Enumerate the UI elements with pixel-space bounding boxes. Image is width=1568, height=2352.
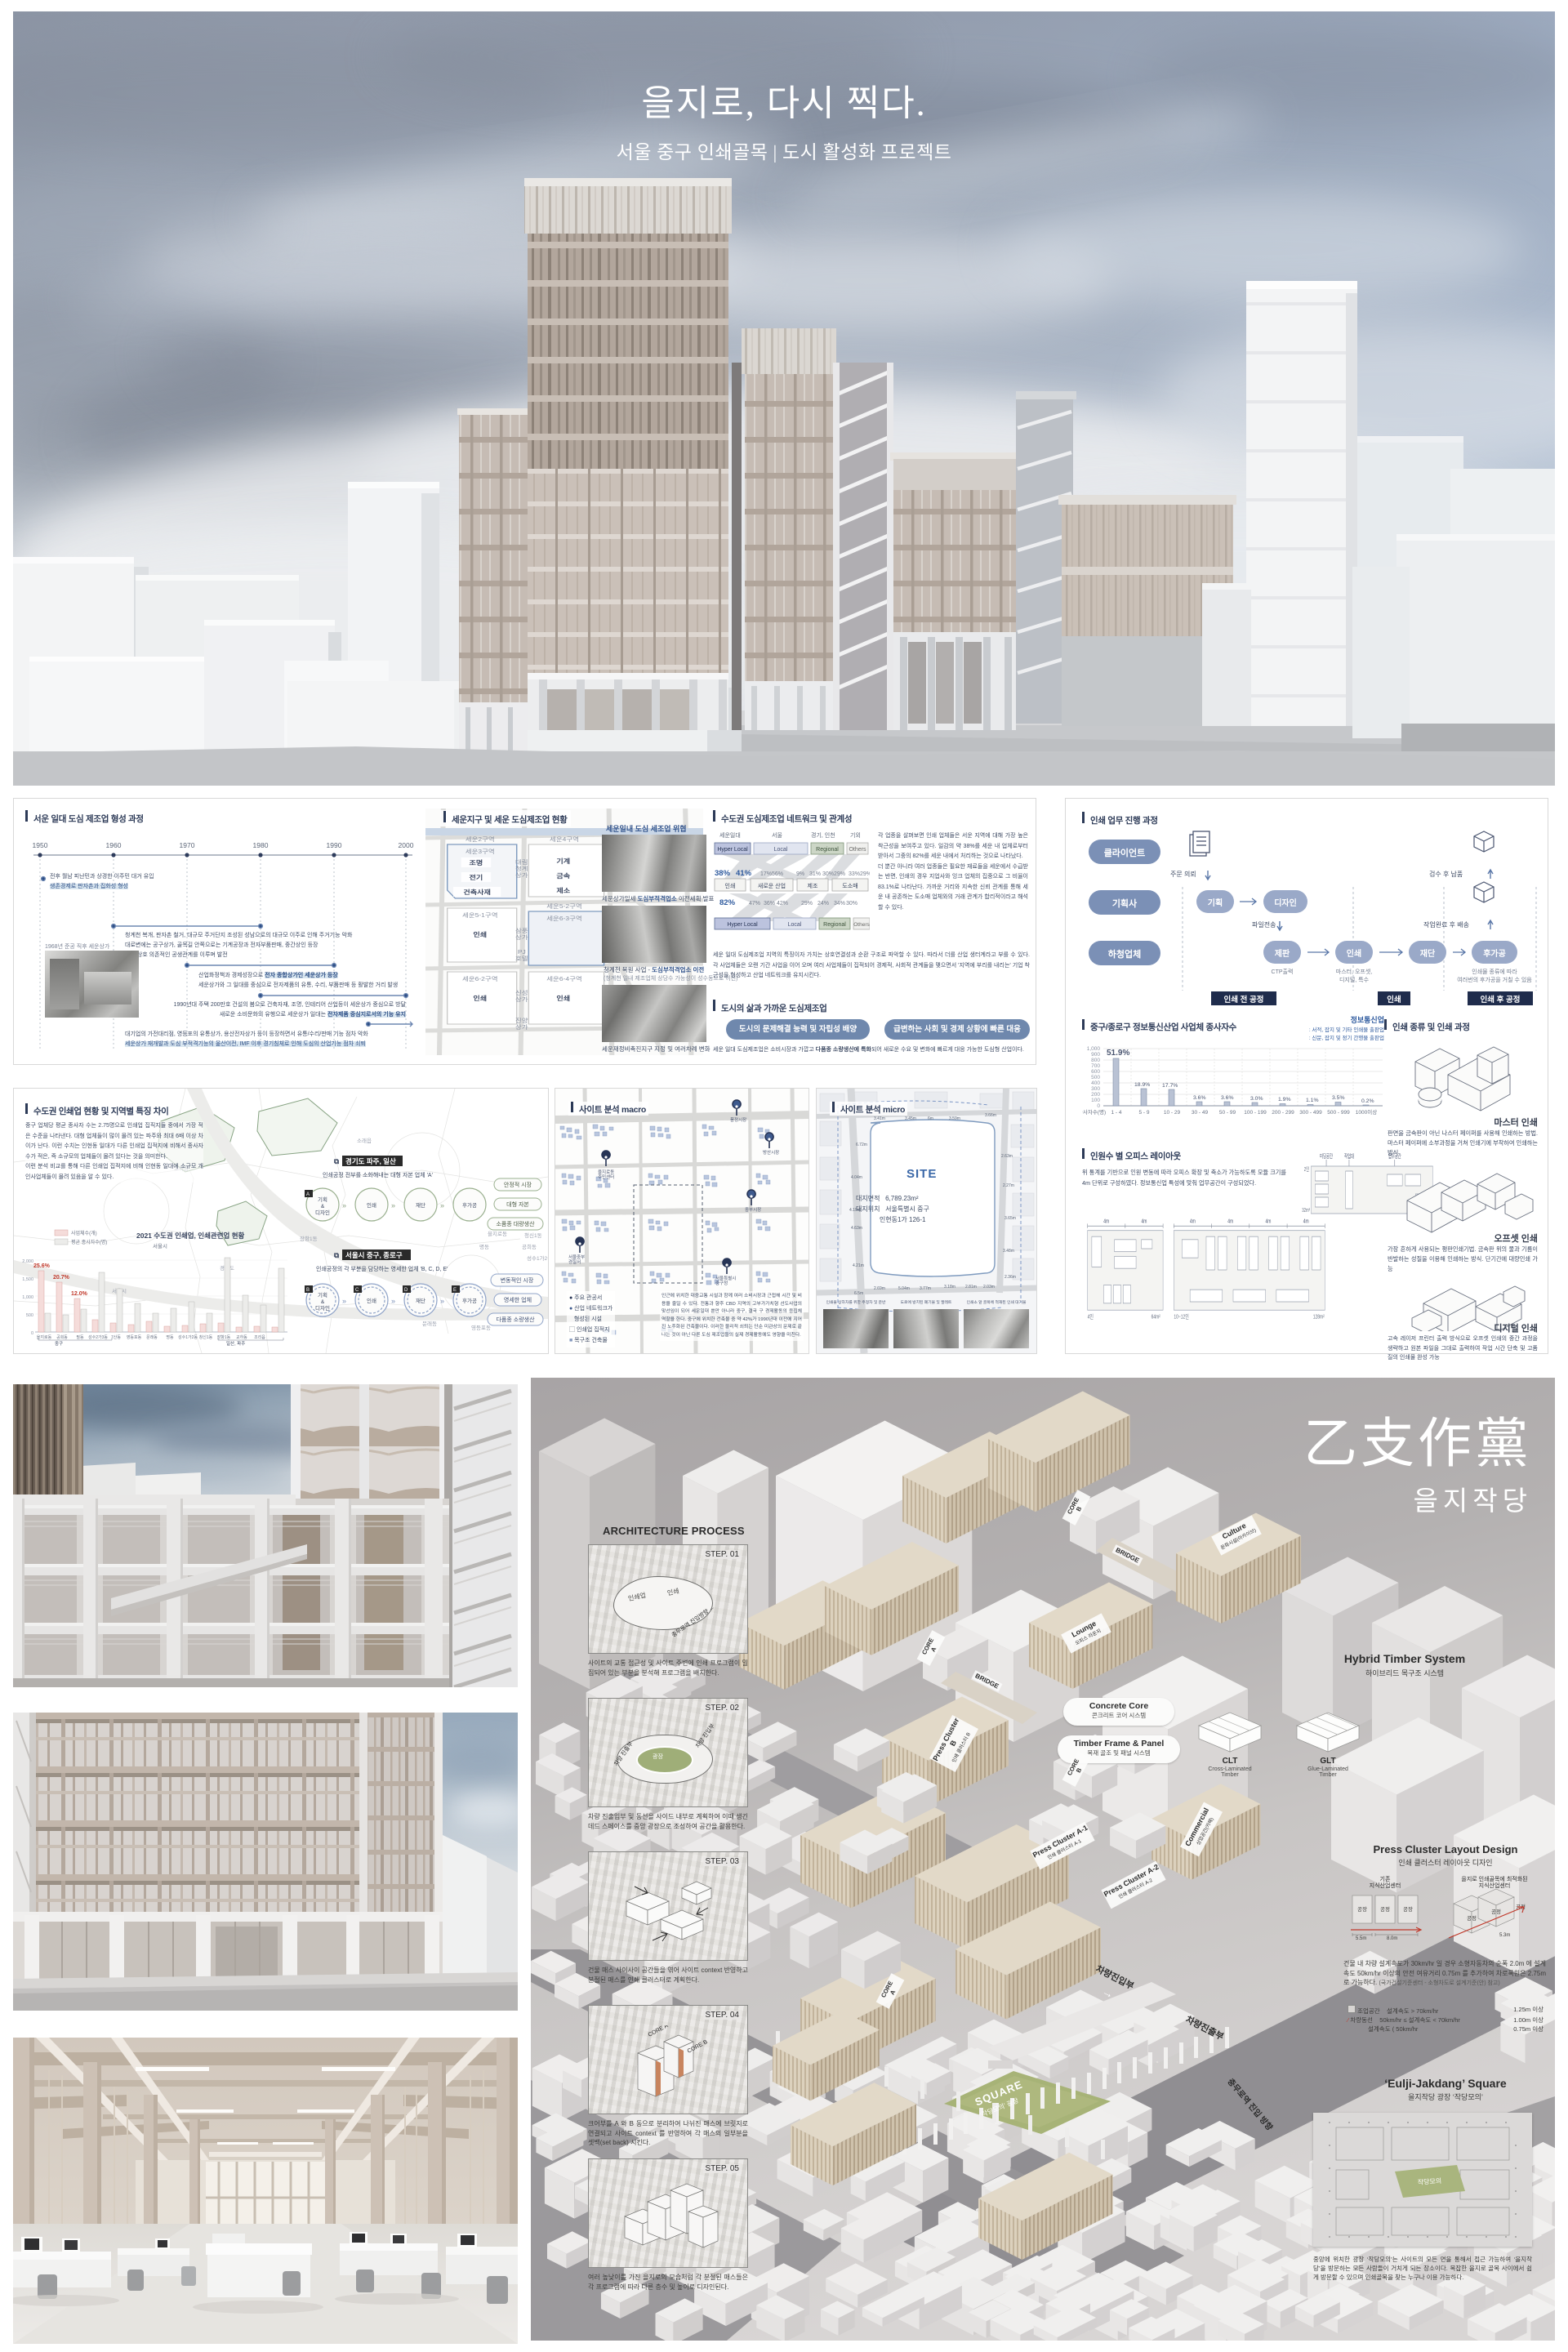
svg-text:4m: 4m bbox=[1190, 1219, 1196, 1225]
svg-text:을지로동: 을지로동 bbox=[37, 1334, 52, 1340]
svg-text:4m: 4m bbox=[1142, 1219, 1147, 1225]
svg-text:128m²: 128m² bbox=[1313, 1315, 1325, 1321]
svg-text:34%: 34% bbox=[834, 901, 845, 906]
svg-text:1980: 1980 bbox=[253, 841, 269, 849]
svg-text:세운2구역: 세운2구역 bbox=[465, 835, 495, 843]
svg-text:인쇄: 인쇄 bbox=[473, 931, 487, 938]
svg-text:인쇄공정 전부를 소화해내는 대형 자본 업체 'A': 인쇄공정 전부를 소화해내는 대형 자본 업체 'A' bbox=[323, 1171, 433, 1178]
svg-text:500: 500 bbox=[1091, 1075, 1100, 1080]
svg-text:3.77m: 3.77m bbox=[920, 1286, 931, 1291]
svg-text:2.69m: 2.69m bbox=[874, 1286, 885, 1291]
svg-text:1960: 1960 bbox=[106, 841, 122, 849]
svg-text:42%: 42% bbox=[777, 901, 788, 906]
svg-text:중부시장: 중부시장 bbox=[745, 1207, 761, 1213]
svg-text:중구: 중구 bbox=[55, 1341, 63, 1346]
svg-text:세운4구역: 세운4구역 bbox=[550, 835, 579, 843]
svg-text:3.6%: 3.6% bbox=[1193, 1095, 1206, 1101]
svg-text:공정: 공정 bbox=[1491, 1908, 1501, 1915]
svg-text:4인: 4인 bbox=[1088, 1314, 1094, 1321]
svg-text:여러번의 후가공을 거칠 수 있음: 여러번의 후가공을 거칠 수 있음 bbox=[1457, 976, 1532, 983]
svg-text:3.0%: 3.0% bbox=[1250, 1096, 1263, 1102]
svg-text:10~12인: 10~12인 bbox=[1174, 1314, 1188, 1321]
svg-text:500 - 999: 500 - 999 bbox=[1327, 1110, 1350, 1116]
svg-text:작업완료 후 배송: 작업완료 후 배송 bbox=[1423, 920, 1469, 929]
svg-text:30%: 30% bbox=[846, 901, 857, 906]
svg-text:Others: Others bbox=[853, 922, 870, 928]
svg-text:3.65m: 3.65m bbox=[1004, 1216, 1016, 1221]
svg-text:1 - 4: 1 - 4 bbox=[1111, 1110, 1121, 1116]
svg-text:세운3구역: 세운3구역 bbox=[465, 848, 495, 855]
svg-text:3.66m: 3.66m bbox=[985, 1113, 996, 1118]
svg-text:2.27m: 2.27m bbox=[1003, 1183, 1014, 1188]
svg-text:디자인: 디자인 bbox=[315, 1304, 330, 1312]
svg-text:후가공: 후가공 bbox=[1483, 948, 1506, 959]
svg-text:17%: 17% bbox=[760, 871, 772, 877]
svg-text:기획: 기획 bbox=[318, 1196, 327, 1203]
svg-text:Cross-Laminated: Cross-Laminated bbox=[1208, 1766, 1251, 1772]
svg-text:32m²: 32m² bbox=[1302, 1208, 1310, 1214]
svg-text:3.18m: 3.18m bbox=[944, 1285, 955, 1290]
svg-text:Regional: Regional bbox=[816, 847, 839, 853]
svg-text:24%: 24% bbox=[817, 901, 829, 906]
svg-text:Timber: Timber bbox=[1221, 1772, 1239, 1778]
svg-text:작당모의: 작당모의 bbox=[1417, 2176, 1441, 2186]
svg-text:성수1가2동: 성수1가2동 bbox=[178, 1334, 198, 1340]
svg-text:20.7%: 20.7% bbox=[53, 1275, 70, 1281]
svg-text:파일전송: 파일전송 bbox=[1252, 920, 1276, 929]
svg-text:17.7%: 17.7% bbox=[1162, 1083, 1178, 1089]
svg-text:1,500: 1,500 bbox=[22, 1277, 33, 1282]
svg-text:»: » bbox=[342, 1201, 346, 1209]
svg-text:상가: 상가 bbox=[515, 996, 528, 1003]
svg-text:56%: 56% bbox=[772, 871, 783, 877]
svg-text:D: D bbox=[404, 1288, 408, 1293]
svg-text:인쇄: 인쇄 bbox=[367, 1201, 376, 1209]
svg-text:금속: 금속 bbox=[556, 872, 570, 880]
svg-text:디자인: 디자인 bbox=[1274, 898, 1297, 908]
svg-text:세운6-3구역: 세운6-3구역 bbox=[546, 915, 581, 922]
svg-text:인쇄물 종류에 따라: 인쇄물 종류에 따라 bbox=[1472, 968, 1517, 975]
svg-text:2.36m: 2.36m bbox=[1004, 1275, 1016, 1280]
svg-text:미딩공간: 미딩공간 bbox=[1320, 1152, 1333, 1160]
svg-text:300: 300 bbox=[1091, 1086, 1100, 1092]
svg-text:100 - 199: 100 - 199 bbox=[1244, 1110, 1267, 1116]
svg-text:을지로 인쇄골목에 최적화된: 을지로 인쇄골목에 최적화된 bbox=[1461, 1875, 1527, 1882]
svg-text:25.6%: 25.6% bbox=[33, 1263, 51, 1269]
svg-text:1.1%: 1.1% bbox=[1306, 1098, 1319, 1103]
svg-text:기획: 기획 bbox=[1208, 898, 1223, 908]
svg-text:29%: 29% bbox=[860, 871, 870, 877]
svg-text:평균 종사자수(명): 평균 종사자수(명) bbox=[71, 1239, 107, 1245]
svg-text:6.72m: 6.72m bbox=[856, 1143, 867, 1147]
svg-text:5 - 9: 5 - 9 bbox=[1138, 1110, 1149, 1116]
svg-text:2.03m: 2.03m bbox=[983, 1285, 995, 1290]
svg-text:38%: 38% bbox=[715, 869, 731, 878]
svg-text:인쇄: 인쇄 bbox=[1387, 995, 1401, 1004]
svg-text:5.3m: 5.3m bbox=[1499, 1933, 1510, 1938]
svg-text:82%: 82% bbox=[719, 898, 736, 907]
svg-text:Regional: Regional bbox=[823, 922, 846, 928]
svg-text:Local: Local bbox=[774, 847, 788, 853]
svg-text:3.45m: 3.45m bbox=[905, 1116, 916, 1121]
svg-text:전기: 전기 bbox=[470, 874, 483, 881]
svg-text:64m²: 64m² bbox=[1151, 1315, 1160, 1321]
svg-text:기존: 기존 bbox=[1380, 1875, 1391, 1882]
svg-text:Hyper Local: Hyper Local bbox=[717, 847, 748, 853]
svg-text:1.9%: 1.9% bbox=[1278, 1097, 1291, 1102]
svg-text:신성: 신성 bbox=[515, 990, 528, 996]
svg-text:인쇄: 인쇄 bbox=[556, 995, 570, 1002]
svg-text:3.5%: 3.5% bbox=[1332, 1095, 1345, 1101]
svg-text:1950: 1950 bbox=[33, 841, 48, 849]
svg-text:다품종 소량생산: 다품종 소량생산 bbox=[496, 1316, 535, 1323]
svg-text:6.5m: 6.5m bbox=[854, 1291, 863, 1296]
svg-text:5.5m: 5.5m bbox=[1356, 1936, 1366, 1941]
svg-text:창신1동: 창신1동 bbox=[199, 1334, 213, 1340]
svg-text:소품종 대량생산: 소품종 대량생산 bbox=[496, 1220, 535, 1227]
svg-text:30%: 30% bbox=[822, 871, 834, 877]
svg-text:900: 900 bbox=[1091, 1052, 1100, 1058]
svg-text:200 - 299: 200 - 299 bbox=[1272, 1110, 1294, 1116]
svg-text:2,000: 2,000 bbox=[22, 1259, 33, 1264]
svg-text:공정: 공정 bbox=[1380, 1905, 1390, 1913]
svg-text:종사자수(명): 종사자수(명) bbox=[1082, 1108, 1106, 1116]
svg-text:서울시 중구, 종로구: 서울시 중구, 종로구 bbox=[345, 1251, 403, 1259]
svg-text:2021 수도권 인쇄업, 인쇄관련업 현황: 2021 수도권 인쇄업, 인쇄관련업 현황 bbox=[136, 1232, 245, 1240]
svg-text:필동: 필동 bbox=[76, 1334, 84, 1340]
svg-text:일산, 파주: 일산, 파주 bbox=[226, 1340, 245, 1346]
svg-text:30 - 49: 30 - 49 bbox=[1192, 1110, 1209, 1116]
svg-text:서울시: 서울시 bbox=[153, 1242, 167, 1249]
svg-text:0: 0 bbox=[1097, 1103, 1100, 1109]
svg-text:4m: 4m bbox=[1303, 1219, 1309, 1225]
svg-text:풍정시장: 풍정시장 bbox=[730, 1117, 746, 1123]
svg-text:5.04m: 5.04m bbox=[898, 1286, 910, 1291]
svg-text:300 - 499: 300 - 499 bbox=[1299, 1110, 1322, 1116]
svg-text:36%: 36% bbox=[764, 901, 775, 906]
svg-text:청계: 청계 bbox=[515, 865, 528, 872]
svg-text:⧉: ⧉ bbox=[334, 1157, 340, 1165]
svg-text:CTP출력: CTP출력 bbox=[1272, 968, 1294, 975]
svg-text:상가: 상가 bbox=[515, 1023, 528, 1031]
svg-text:기획: 기획 bbox=[318, 1291, 327, 1298]
svg-text:세운일대: 세운일대 bbox=[719, 831, 741, 839]
svg-text:마스터, 오프셋,: 마스터, 오프셋, bbox=[1336, 968, 1373, 975]
svg-text:4.21m: 4.21m bbox=[853, 1263, 864, 1268]
svg-text:9%: 9% bbox=[796, 871, 804, 877]
svg-text:800: 800 bbox=[1091, 1058, 1100, 1063]
svg-text:영세한 업체: 영세한 업체 bbox=[504, 1296, 532, 1303]
svg-text:변동적인 시장: 변동적인 시장 bbox=[501, 1276, 534, 1284]
svg-text:»: » bbox=[391, 1297, 395, 1305]
svg-text:경기, 인천: 경기, 인천 bbox=[811, 831, 835, 839]
svg-text:Glue-Laminated: Glue-Laminated bbox=[1307, 1766, 1348, 1772]
svg-text:7산동: 7산동 bbox=[111, 1334, 121, 1340]
svg-text:0.2%: 0.2% bbox=[1361, 1098, 1374, 1104]
svg-text:PJ: PJ bbox=[518, 949, 526, 955]
svg-text:기계: 기계 bbox=[556, 857, 570, 865]
svg-text:인쇄: 인쇄 bbox=[473, 995, 487, 1002]
svg-text:공장: 공장 bbox=[1403, 1905, 1413, 1913]
svg-text:공희동: 공희동 bbox=[56, 1334, 68, 1340]
svg-text:4.63m: 4.63m bbox=[851, 1226, 862, 1231]
svg-text:제조: 제조 bbox=[808, 883, 818, 889]
svg-text:경기도 파주, 일산: 경기도 파주, 일산 bbox=[345, 1157, 396, 1165]
svg-text:Timber: Timber bbox=[1319, 1772, 1337, 1778]
svg-text:재단: 재단 bbox=[416, 1297, 425, 1304]
svg-text:재단: 재단 bbox=[1420, 948, 1436, 959]
svg-text:»: » bbox=[391, 1201, 395, 1209]
svg-text:GLT: GLT bbox=[1320, 1757, 1335, 1766]
svg-text:Others: Others bbox=[849, 847, 866, 853]
svg-text:50 - 99: 50 - 99 bbox=[1219, 1110, 1236, 1116]
svg-text:51.9%: 51.9% bbox=[1107, 1049, 1129, 1058]
svg-text:A: A bbox=[306, 1192, 310, 1197]
svg-text:C: C bbox=[355, 1288, 359, 1293]
svg-text:3.59m: 3.59m bbox=[949, 1116, 960, 1121]
svg-text:대림: 대림 bbox=[515, 859, 528, 866]
svg-text:방산시장: 방산시장 bbox=[763, 1149, 779, 1156]
svg-text:지식산업센터: 지식산업센터 bbox=[1370, 1882, 1401, 1889]
svg-text:1990: 1990 bbox=[327, 841, 342, 849]
svg-text:문래동: 문래동 bbox=[146, 1334, 158, 1340]
svg-text:인쇄: 인쇄 bbox=[367, 1297, 376, 1304]
svg-text:상가: 상가 bbox=[515, 871, 528, 879]
svg-text:사업체수(개): 사업체수(개) bbox=[71, 1230, 97, 1236]
svg-text:새로운 산업: 새로운 산업 bbox=[758, 882, 786, 889]
svg-text:디지털, 특수: 디지털, 특수 bbox=[1339, 976, 1370, 983]
svg-text:»: » bbox=[440, 1297, 444, 1305]
svg-text:200: 200 bbox=[1091, 1092, 1100, 1098]
svg-text:4m: 4m bbox=[1227, 1219, 1233, 1225]
svg-text:호텔: 호텔 bbox=[515, 955, 528, 962]
svg-text:18.9%: 18.9% bbox=[1134, 1082, 1150, 1088]
svg-text:CORE A: CORE A bbox=[648, 2025, 670, 2038]
svg-text:을지로동주민센터: 을지로동주민센터 bbox=[598, 1169, 614, 1180]
svg-text:후가공: 후가공 bbox=[462, 1201, 477, 1209]
svg-text:제소: 제소 bbox=[556, 887, 570, 894]
svg-text:주문 의뢰: 주문 의뢰 bbox=[1170, 870, 1196, 878]
svg-text:대형 자본: 대형 자본 bbox=[506, 1200, 529, 1208]
svg-text:⧉: ⧉ bbox=[334, 1251, 340, 1259]
svg-text:서울: 서울 bbox=[772, 831, 782, 839]
svg-text:세운6-4구역: 세운6-4구역 bbox=[546, 975, 581, 982]
svg-text:인쇄: 인쇄 bbox=[725, 882, 736, 889]
svg-text:세운5-2구역: 세운5-2구역 bbox=[546, 902, 581, 910]
svg-text:4m: 4m bbox=[1103, 1219, 1109, 1225]
svg-text:&: & bbox=[321, 1299, 325, 1305]
svg-text:2000: 2000 bbox=[399, 841, 414, 849]
svg-text:2인: 2인 bbox=[1304, 1166, 1309, 1173]
svg-text:삼풍: 삼풍 bbox=[515, 927, 528, 934]
svg-text:영등포동: 영등포동 bbox=[127, 1334, 142, 1340]
svg-text:&: & bbox=[321, 1204, 325, 1209]
svg-text:1970: 1970 bbox=[180, 841, 195, 849]
svg-text:4m: 4m bbox=[1266, 1219, 1272, 1225]
svg-text:인쇄: 인쇄 bbox=[1347, 948, 1361, 959]
svg-text:29%: 29% bbox=[801, 901, 813, 906]
svg-text:인쇄 전 공정: 인쇄 전 공정 bbox=[1224, 995, 1264, 1004]
svg-text:700: 700 bbox=[1091, 1063, 1100, 1069]
svg-text:2.81m: 2.81m bbox=[965, 1285, 977, 1290]
svg-text:B: B bbox=[306, 1288, 310, 1293]
svg-text:공정: 공정 bbox=[1467, 1914, 1477, 1922]
svg-text:41%: 41% bbox=[736, 869, 752, 878]
svg-text:작업대: 작업대 bbox=[1344, 1152, 1354, 1160]
svg-text:10 - 29: 10 - 29 bbox=[1164, 1110, 1181, 1116]
svg-text:명동: 명동 bbox=[166, 1334, 174, 1340]
svg-text:교하동: 교하동 bbox=[236, 1334, 247, 1340]
svg-text:8.0m: 8.0m bbox=[1387, 1936, 1397, 1941]
svg-text:재단: 재단 bbox=[416, 1201, 425, 1209]
svg-text:하청업체: 하청업체 bbox=[1108, 948, 1141, 960]
svg-text:조리읍: 조리읍 bbox=[254, 1334, 265, 1340]
svg-text:3.48m: 3.48m bbox=[1003, 1249, 1014, 1254]
svg-text:도소매: 도소매 bbox=[842, 883, 857, 889]
svg-text:31%: 31% bbox=[809, 871, 821, 877]
svg-text:12.0%: 12.0% bbox=[71, 1291, 88, 1297]
svg-text:공장: 공장 bbox=[1357, 1905, 1367, 1913]
svg-text:500: 500 bbox=[26, 1313, 33, 1318]
svg-text:»: » bbox=[440, 1201, 444, 1209]
svg-text:후가공: 후가공 bbox=[462, 1297, 477, 1304]
svg-text:3.41m: 3.41m bbox=[874, 1116, 885, 1121]
svg-text:100: 100 bbox=[1091, 1098, 1100, 1103]
svg-text:기외: 기외 bbox=[850, 831, 861, 839]
svg-text:성수2가3동: 성수2가3동 bbox=[88, 1334, 108, 1340]
svg-text:디자인: 디자인 bbox=[315, 1209, 330, 1216]
svg-text:400: 400 bbox=[1091, 1080, 1100, 1086]
svg-text:조명: 조명 bbox=[470, 859, 483, 866]
svg-text:인쇄 후 공정: 인쇄 후 공정 bbox=[1481, 995, 1521, 1004]
svg-text:클라이언트: 클라이언트 bbox=[1104, 847, 1146, 858]
svg-text:0: 0 bbox=[31, 1331, 33, 1336]
svg-text:Local: Local bbox=[788, 922, 802, 928]
svg-text:600: 600 bbox=[1091, 1069, 1100, 1075]
svg-text:상가: 상가 bbox=[515, 933, 528, 941]
svg-text:4.04m: 4.04m bbox=[851, 1175, 862, 1180]
svg-text:33%: 33% bbox=[849, 871, 860, 877]
svg-text:인쇄공정의 각 부분을 담당하는 영세한 업체 'B, C,: 인쇄공정의 각 부분을 담당하는 영세한 업체 'B, C, D, E' bbox=[316, 1265, 448, 1272]
svg-text:3.6%: 3.6% bbox=[1221, 1095, 1234, 1101]
svg-text:안정적 시장: 안정적 시장 bbox=[504, 1181, 532, 1188]
svg-text:1,000: 1,000 bbox=[22, 1295, 33, 1300]
svg-text:Hyper Local: Hyper Local bbox=[727, 922, 758, 928]
svg-text:검수 후 납품: 검수 후 납품 bbox=[1429, 870, 1463, 878]
svg-text:진양: 진양 bbox=[515, 1017, 528, 1024]
svg-text:2.63m: 2.63m bbox=[1001, 1154, 1013, 1159]
svg-text:세운5-1구역: 세운5-1구역 bbox=[462, 911, 497, 919]
svg-text:»: » bbox=[342, 1297, 346, 1305]
svg-text:제판: 제판 bbox=[1275, 948, 1290, 959]
svg-text:29%: 29% bbox=[834, 871, 845, 877]
svg-text:E: E bbox=[453, 1288, 457, 1293]
svg-text:1,000: 1,000 bbox=[1087, 1046, 1101, 1052]
svg-text:CLT: CLT bbox=[1223, 1757, 1238, 1766]
svg-text:47%: 47% bbox=[749, 901, 760, 906]
svg-text:세운6-2구역: 세운6-2구역 bbox=[462, 975, 497, 982]
svg-text:6m: 6m bbox=[928, 1116, 933, 1121]
svg-text:소래읍: 소래읍 bbox=[357, 1137, 372, 1144]
svg-text:장항1동: 장항1동 bbox=[217, 1334, 231, 1340]
svg-text:1000이상: 1000이상 bbox=[1356, 1108, 1377, 1116]
svg-text:건축사재: 건축사재 bbox=[463, 889, 491, 896]
svg-text:기획사: 기획사 bbox=[1112, 898, 1138, 909]
svg-text:지식산업센터: 지식산업센터 bbox=[1479, 1882, 1511, 1889]
